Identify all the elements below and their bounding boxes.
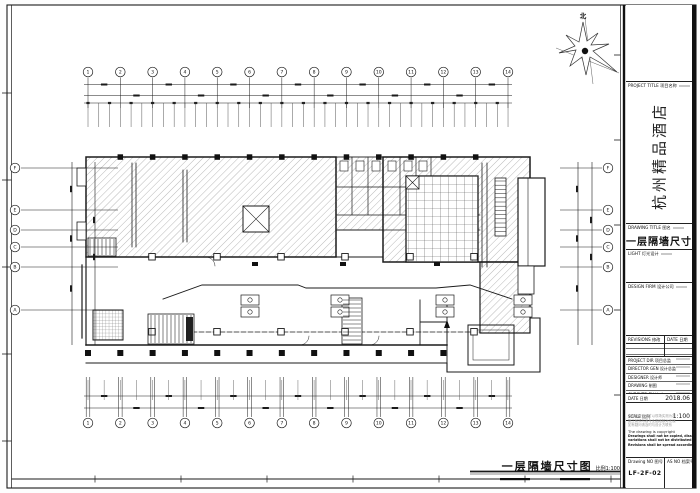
grid-bubble-label: 2	[119, 421, 122, 427]
grid-bubble-label: 6	[248, 421, 251, 427]
grid-bubble-label: 7	[280, 70, 283, 76]
title-block-spacer	[626, 5, 692, 82]
grid-bubble-label: 10	[376, 421, 382, 427]
revisions-date-label: DATE 日期	[667, 336, 688, 343]
grid-bubble-label: 11	[408, 421, 414, 427]
staff-rows: PROJECT DIR 项目总监 DIRECTOR GEN 设计总监 DESIG…	[626, 357, 692, 394]
grid-bubble-label: 14	[505, 421, 511, 427]
grid-bubble-label: 1	[87, 421, 90, 427]
footer-scale-note: 比例1:100	[596, 466, 620, 472]
grid-bubble-label: 7	[280, 421, 283, 427]
right-wing	[518, 178, 545, 266]
light-section: LIGHT 灯光设计	[626, 250, 692, 283]
drawing-no-label: Drawing NO 图号	[626, 458, 664, 465]
footer-drawing-title: 一层隔墙尺寸图比例1:100	[470, 455, 620, 471]
grid-bubble-label: 3	[151, 70, 154, 76]
grid-bubble-label: 8	[313, 421, 316, 427]
as-no-label: AS NO 档案号	[665, 458, 692, 465]
project-title: 杭州精品酒店	[626, 88, 692, 223]
titleblock-row-designer: DESIGNER 设计师	[626, 374, 692, 382]
grid-bubble-label: B	[13, 265, 16, 271]
light-label: LIGHT 灯光设计	[626, 250, 692, 257]
grid-bubble-label: C	[606, 245, 609, 251]
grid-bubble-label: D	[606, 228, 610, 234]
floor-plan-canvas: 北 12345678910111213141234567891011121314…	[0, 0, 700, 493]
grid-bubble-label: 13	[473, 421, 479, 427]
titleblock-row-project-dir: PROJECT DIR 项目总监	[626, 357, 692, 365]
drawing-sheet: 北 12345678910111213141234567891011121314…	[0, 0, 700, 493]
grid-bubble-label: 2	[119, 70, 122, 76]
grid-bubble-label: 12	[440, 70, 446, 76]
grid-bubble-label: B	[606, 265, 609, 271]
design-firm-label: DESIGN FIRM 设计公司	[626, 283, 692, 290]
grid-bubble-label: 11	[408, 70, 414, 76]
revisions-label: REVISIONS 修改	[628, 336, 660, 343]
grid-bubble-label: 9	[345, 421, 348, 427]
grid-bubble-label: 6	[248, 70, 251, 76]
hatched-zone-kitchen	[86, 157, 336, 257]
grid-bubble-label: F	[14, 166, 17, 172]
grid-bubble-label: 5	[216, 70, 219, 76]
grid-bubble-label: 3	[151, 421, 154, 427]
grid-bubble-label: 8	[313, 70, 316, 76]
notes-section: 本图纸所注尺寸以现场实测为准 施工前须与各专业图纸核对无误 如有疑问请及时与设计…	[626, 412, 692, 458]
revisions-table: REVISIONS 修改 DATE 日期	[626, 336, 692, 357]
drawing-title-section: DRAWING TITLE 图名 一层隔墙尺寸图	[626, 224, 692, 250]
note-line: 如有疑问请及时与设计方联系	[628, 423, 690, 428]
grid-bubble-label: 4	[183, 421, 186, 427]
copyright-line: Revisions shall be spread according to i…	[628, 443, 690, 448]
grid-bubble-label: 4	[183, 70, 186, 76]
titleblock-row-drawing: DRAWING 制图	[626, 382, 692, 390]
grid-bubble-label: F	[607, 166, 610, 172]
grid-bubble-label: C	[13, 245, 16, 251]
patterned-floor	[93, 310, 123, 340]
drawing-title: 一层隔墙尺寸图	[626, 233, 692, 250]
design-firm-section: DESIGN FIRM 设计公司	[626, 283, 692, 336]
grid-bubble-label: 1	[87, 70, 90, 76]
project-title-section: PROJECT TITLE 项目名称 杭州精品酒店	[626, 82, 692, 224]
title-block: PROJECT TITLE 项目名称 杭州精品酒店 DRAWING TITLE …	[626, 5, 692, 488]
date-value: 2018.06	[665, 394, 690, 403]
grid-bubble-label: E	[14, 208, 17, 214]
grid-bubble-label: 5	[216, 421, 219, 427]
drawing-number-section: Drawing NO 图号 LF-2F-02 AS NO 档案号	[626, 458, 692, 488]
grid-bubble-label: 9	[345, 70, 348, 76]
titleblock-row-date: DATE 日期 2018.06	[626, 394, 692, 403]
grid-bubble-label: 13	[473, 70, 479, 76]
grid-bubble-label: D	[13, 228, 17, 234]
grid-bubble-label: E	[607, 208, 610, 214]
footer-title-text: 一层隔墙尺寸图	[502, 460, 593, 473]
drawing-no-value: LF-2F-02	[626, 470, 664, 477]
grid-bubble-label: 14	[505, 70, 511, 76]
grid-bubble-label: 12	[440, 421, 446, 427]
north-label: 北	[580, 11, 587, 20]
titleblock-row-director: DIRECTOR GEN 设计总监	[626, 365, 692, 373]
grid-bubble-label: 10	[376, 70, 382, 76]
drawing-title-label: DRAWING TITLE 图名	[626, 224, 692, 231]
